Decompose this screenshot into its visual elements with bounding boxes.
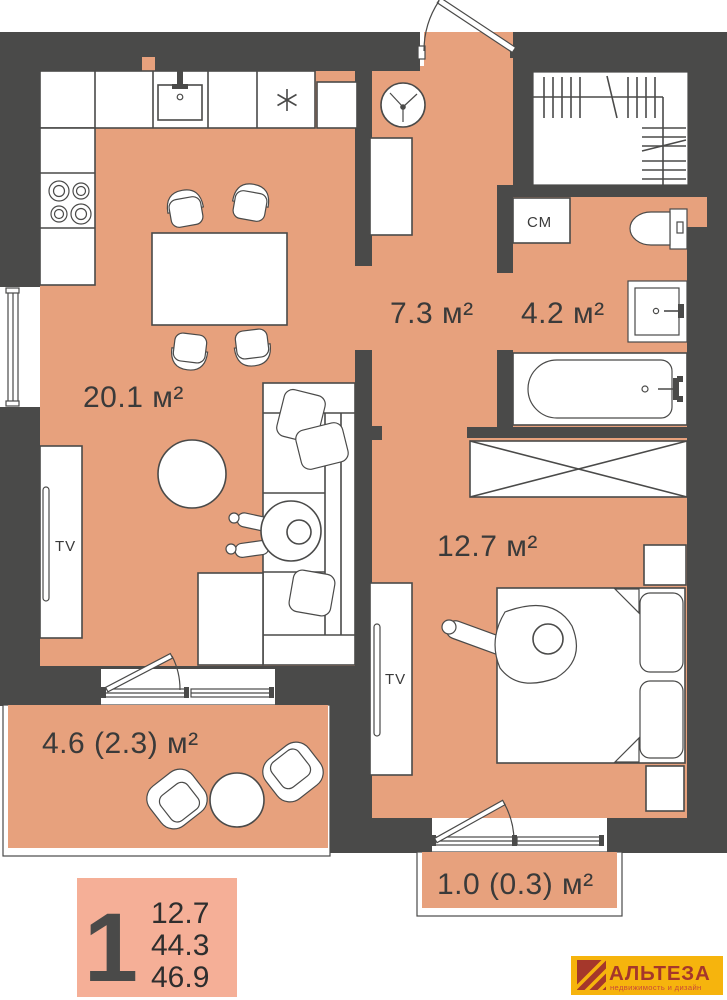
floor-plan: TV СМ bbox=[0, 0, 727, 1000]
washing-machine-label: СМ bbox=[527, 214, 552, 231]
pillow bbox=[288, 569, 337, 618]
rug-icon bbox=[158, 440, 226, 508]
legend-area: 44.3 bbox=[151, 929, 209, 962]
room-label-hallway: 7.3 м² bbox=[390, 297, 474, 330]
room-label-loggia: 4.6 (2.3) м² bbox=[42, 727, 199, 760]
logo: АЛЬТЕЗА недвижимость и дизайн bbox=[571, 956, 723, 1000]
wardrobe-icon bbox=[470, 441, 687, 497]
niche-toilet bbox=[687, 197, 707, 227]
logo-name: АЛЬТЕЗА bbox=[609, 962, 711, 985]
tv-bedroom-label: TV bbox=[385, 671, 406, 688]
legend-total-area: 46.9 bbox=[151, 961, 209, 994]
tv-living-label: TV bbox=[55, 538, 76, 555]
logo-tagline: недвижимость и дизайн bbox=[610, 983, 702, 992]
floor-plan-page: TV СМ bbox=[0, 0, 727, 1000]
window-living bbox=[0, 287, 40, 407]
room-label-kitchen-living: 20.1 м² bbox=[83, 381, 184, 414]
hallway-cabinet bbox=[370, 138, 412, 235]
duct-notch bbox=[142, 57, 155, 71]
side-table bbox=[210, 773, 264, 827]
stairs-icon bbox=[533, 72, 688, 185]
room-label-bedroom: 12.7 м² bbox=[437, 530, 538, 563]
dining-table bbox=[152, 233, 287, 325]
opening-living-hallway bbox=[355, 266, 372, 350]
nightstand bbox=[644, 545, 686, 585]
washbasin-icon bbox=[628, 281, 687, 342]
room-label-bathroom: 4.2 м² bbox=[521, 297, 605, 330]
ceiling-fan-icon bbox=[381, 83, 425, 127]
legend-rooms-count: 1 bbox=[84, 893, 138, 1000]
opening-bedroom-door bbox=[382, 425, 467, 440]
bathtub-icon bbox=[513, 353, 687, 425]
opening-bathroom-door bbox=[497, 273, 513, 350]
legend: 1 12.7 44.3 46.9 bbox=[77, 878, 237, 1000]
legend-living-area: 12.7 bbox=[151, 897, 209, 930]
nightstand bbox=[646, 766, 684, 811]
room-label-balcony: 1.0 (0.3) м² bbox=[437, 868, 594, 901]
